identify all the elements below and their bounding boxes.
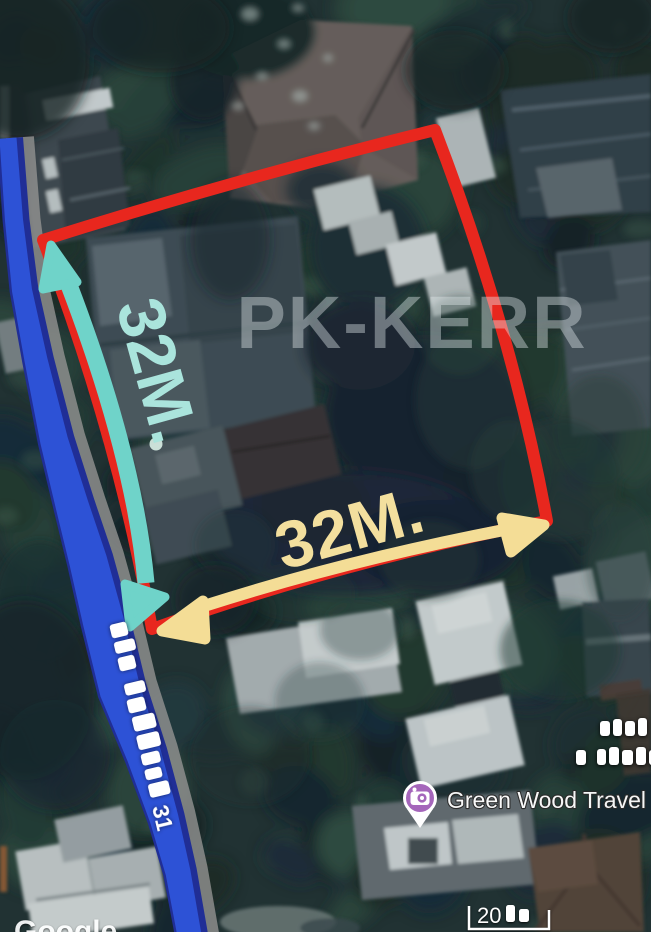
svg-text:Google: Google bbox=[14, 915, 117, 932]
svg-text:Green Wood Travel: Green Wood Travel bbox=[447, 787, 646, 813]
svg-text:20: 20 bbox=[477, 903, 501, 928]
svg-text:PK-KERR: PK-KERR bbox=[236, 281, 587, 364]
